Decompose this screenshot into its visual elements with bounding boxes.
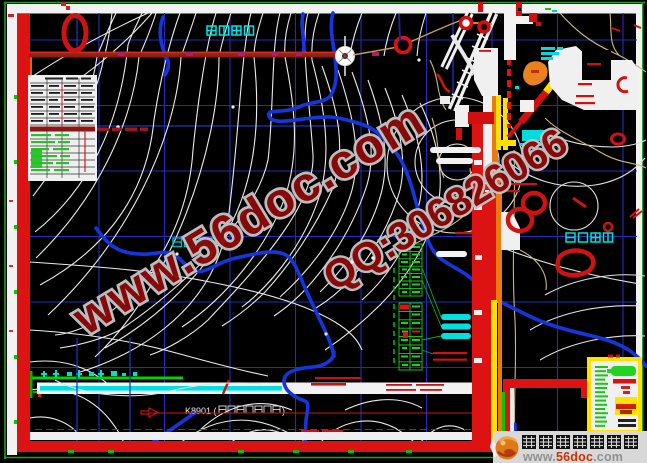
svg-text:www.56doc.com: www.56doc.com (522, 450, 623, 463)
svg-text:): ) (282, 406, 285, 416)
svg-text:K8901 (: K8901 ( (185, 406, 217, 416)
